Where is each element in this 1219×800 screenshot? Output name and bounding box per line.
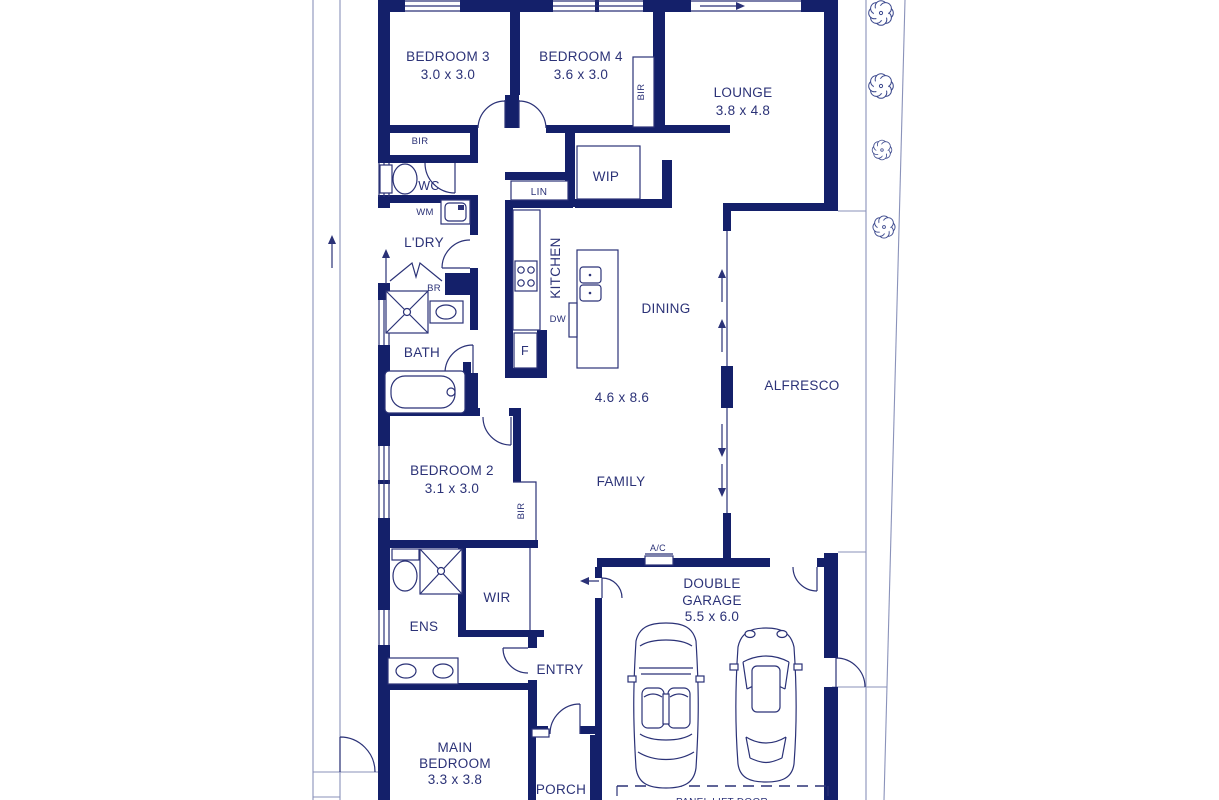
bedroom4-label: BEDROOM 4	[539, 49, 623, 64]
tree-icon	[869, 1, 894, 26]
garage-label-2: GARAGE	[682, 593, 742, 608]
ens-shower-icon	[420, 549, 462, 594]
ens-label: ENS	[410, 619, 439, 634]
main-bedroom-dims: 3.3 x 3.8	[428, 772, 483, 787]
tree-icon	[869, 74, 894, 99]
dishwasher	[569, 303, 577, 337]
bedroom2-label: BEDROOM 2	[410, 463, 494, 478]
washing-machine-icon	[441, 200, 470, 224]
lounge-dims: 3.8 x 4.8	[716, 103, 771, 118]
tree-icon	[872, 140, 892, 160]
main-bedroom-label-1: MAIN	[438, 740, 473, 755]
shower-icon	[386, 291, 428, 333]
ens-vanity-icon	[388, 658, 458, 684]
wip-label: WIP	[593, 169, 619, 184]
ac-label: A/C	[650, 543, 666, 553]
entry-label: ENTRY	[536, 662, 583, 677]
entry-step	[532, 729, 549, 737]
car-icon	[730, 628, 802, 782]
bath-label: BATH	[404, 345, 440, 360]
family-label: FAMILY	[597, 474, 646, 489]
basin-icon	[430, 301, 463, 323]
main-bedroom-label-2: BEDROOM	[419, 756, 491, 771]
br-label: BR	[427, 283, 441, 294]
car-convertible-icon	[628, 623, 704, 788]
ac-unit	[645, 554, 673, 565]
dw-label: DW	[550, 314, 566, 325]
wir-label: WIR	[483, 590, 510, 605]
bir-label: BIR	[412, 136, 429, 147]
garage-label-1: DOUBLE	[683, 576, 740, 591]
lin-label: LIN	[531, 187, 547, 198]
dining-label: DINING	[641, 301, 690, 316]
floor-plan: BEDROOM 3 3.0 x 3.0 BEDROOM 4 3.6 x 3.0 …	[0, 0, 1219, 800]
bathtub-icon	[385, 371, 465, 413]
kitchen-label: KITCHEN	[548, 237, 563, 298]
bedroom4-dims: 3.6 x 3.0	[554, 67, 609, 82]
tree-icon	[873, 216, 895, 238]
toilet-icon	[380, 164, 417, 194]
bedroom2-dims: 3.1 x 3.0	[425, 481, 480, 496]
ens-toilet-icon	[392, 549, 419, 591]
bir-label: BIR	[636, 84, 647, 101]
porch-label: PORCH	[536, 782, 586, 797]
family-dims: 4.6 x 8.6	[595, 390, 650, 405]
bedroom3-dims: 3.0 x 3.0	[421, 67, 476, 82]
bir-label: BIR	[516, 503, 527, 520]
bedroom3-label: BEDROOM 3	[406, 49, 490, 64]
ldry-label: L'DRY	[404, 235, 444, 250]
lounge-label: LOUNGE	[714, 85, 773, 100]
wm-label: WM	[416, 207, 433, 218]
fridge-label: F	[521, 344, 529, 358]
garage-dims: 5.5 x 6.0	[685, 609, 740, 624]
cooktop-icon	[515, 261, 537, 291]
wc-label: WC	[418, 179, 439, 193]
alfresco-label: ALFRESCO	[764, 378, 839, 393]
